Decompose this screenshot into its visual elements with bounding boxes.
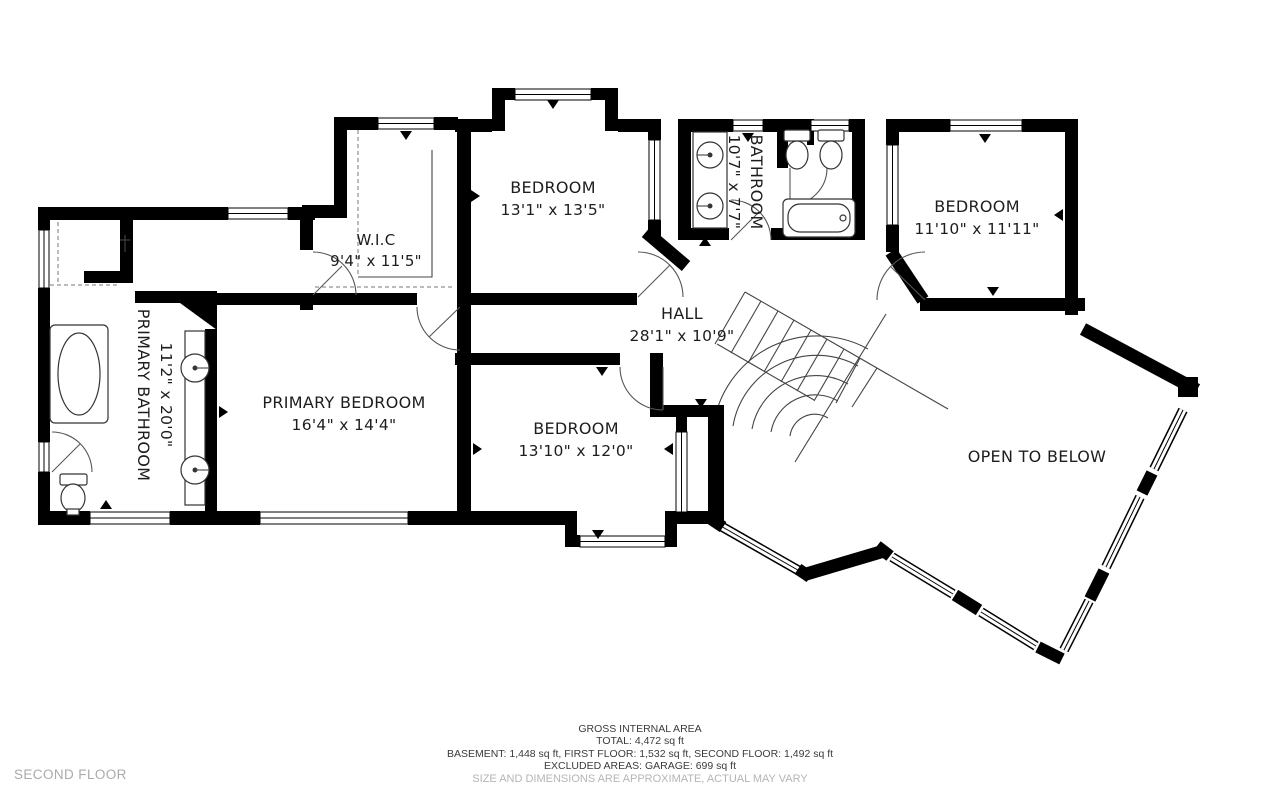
- floor-plan-canvas: PRIMARY BATHROOM 11'2" x 20'0" W.I.C 9'4…: [0, 0, 1280, 799]
- room-label-bathroom-name: BATHROOM: [747, 135, 766, 230]
- floor-name-label: SECOND FLOOR: [14, 767, 127, 782]
- gross-internal-area-title: GROSS INTERNAL AREA: [0, 723, 1280, 735]
- room-label-bedroom-bottom-dims: 13'10" x 12'0": [518, 442, 633, 460]
- room-label-wic-name: W.I.C: [356, 231, 395, 249]
- area-summary: GROSS INTERNAL AREA TOTAL: 4,472 sq ft B…: [0, 723, 1280, 785]
- room-label-primary-bedroom-name: PRIMARY BEDROOM: [262, 393, 425, 412]
- double-vanity-icon: [181, 331, 209, 505]
- total-area: TOTAL: 4,472 sq ft: [0, 735, 1280, 747]
- disclaimer: SIZE AND DIMENSIONS ARE APPROXIMATE, ACT…: [0, 773, 1280, 785]
- toilet-icon: [784, 130, 810, 169]
- room-label-bathroom-dims: 10'7" x 7'7": [725, 135, 743, 230]
- room-label-hall-name: HALL: [661, 304, 703, 323]
- room-label-bedroom-top-dims: 13'1" x 13'5": [501, 201, 606, 219]
- room-label-bedroom-right-dims: 11'10" x 11'11": [914, 220, 1039, 238]
- room-label-wic-dims: 9'4" x 11'5": [330, 252, 422, 270]
- room-label-primary-bathroom-name: PRIMARY BATHROOM: [134, 309, 153, 482]
- excluded-areas: EXCLUDED AREAS: GARAGE: 699 sq ft: [0, 760, 1280, 772]
- room-label-bedroom-right-name: BEDROOM: [934, 197, 1020, 216]
- floor-areas: BASEMENT: 1,448 sq ft, FIRST FLOOR: 1,53…: [0, 748, 1280, 760]
- bathtub-icon: [783, 199, 855, 237]
- bathtub-icon: [50, 325, 108, 423]
- balcony-railings: [711, 329, 1198, 659]
- room-label-bedroom-bottom-name: BEDROOM: [533, 419, 619, 438]
- room-label-bedroom-top-name: BEDROOM: [510, 178, 596, 197]
- room-label-hall-dims: 28'1" x 10'9": [630, 327, 735, 345]
- staircase: [714, 292, 948, 462]
- dimension-markers: [100, 100, 1063, 539]
- toilet-icon: [818, 130, 844, 169]
- vanity-icon: [693, 132, 727, 228]
- room-label-primary-bedroom-dims: 16'4" x 14'4": [292, 416, 397, 434]
- room-label-open-to-below: OPEN TO BELOW: [968, 447, 1107, 466]
- toilet-icon: [60, 474, 87, 515]
- room-label-primary-bathroom-dims: 11'2" x 20'0": [157, 343, 175, 448]
